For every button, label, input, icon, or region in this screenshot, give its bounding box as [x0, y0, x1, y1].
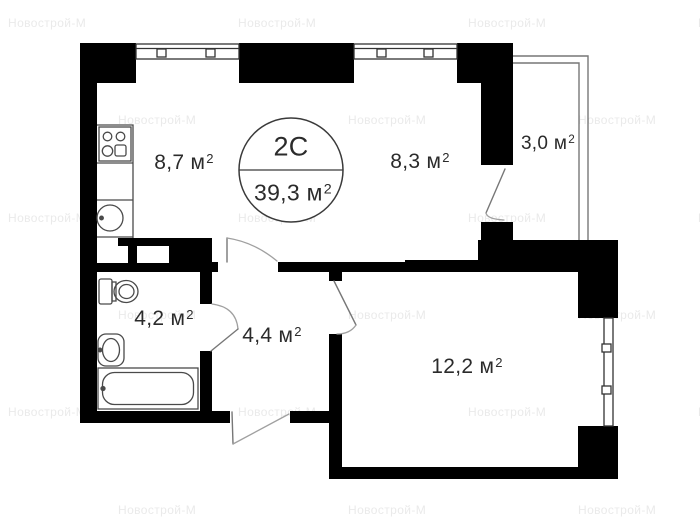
bathroom-sink: [98, 334, 124, 366]
floor-plan-drawing: [0, 0, 700, 525]
balcony-door: [486, 169, 505, 220]
total-area-label: 39,3 м2: [254, 180, 332, 207]
toilet: [99, 279, 138, 304]
stove: [99, 127, 131, 161]
room-label-bathroom: 4,2 м2: [134, 307, 194, 331]
bedroom-window: [602, 318, 613, 426]
room-label-kitchen: 8,7 м2: [154, 151, 214, 175]
total-area-sup: 2: [324, 181, 332, 197]
bedroom-door: [334, 281, 356, 334]
kitchen-window: [136, 44, 239, 59]
kitchen-sink: [97, 205, 123, 231]
room-label-living: 8,3 м2: [390, 150, 450, 174]
kitchen-counter: [97, 125, 133, 238]
room-label-balcony: 3,0 м2: [521, 133, 575, 155]
room-label-bedroom: 12,2 м2: [431, 355, 503, 379]
unit-type-label: 2С: [273, 132, 308, 163]
bathroom-door: [211, 304, 238, 351]
living-room-window: [354, 44, 457, 59]
room-label-hallway: 4,4 м2: [242, 324, 302, 348]
vent-shaft: [137, 246, 169, 263]
bathtub: [98, 368, 198, 409]
entrance-door: [232, 412, 289, 444]
kitchen-door: [227, 238, 277, 262]
floor-plan: Новострой-МНовострой-МНовострой-МНовостр…: [0, 0, 700, 525]
